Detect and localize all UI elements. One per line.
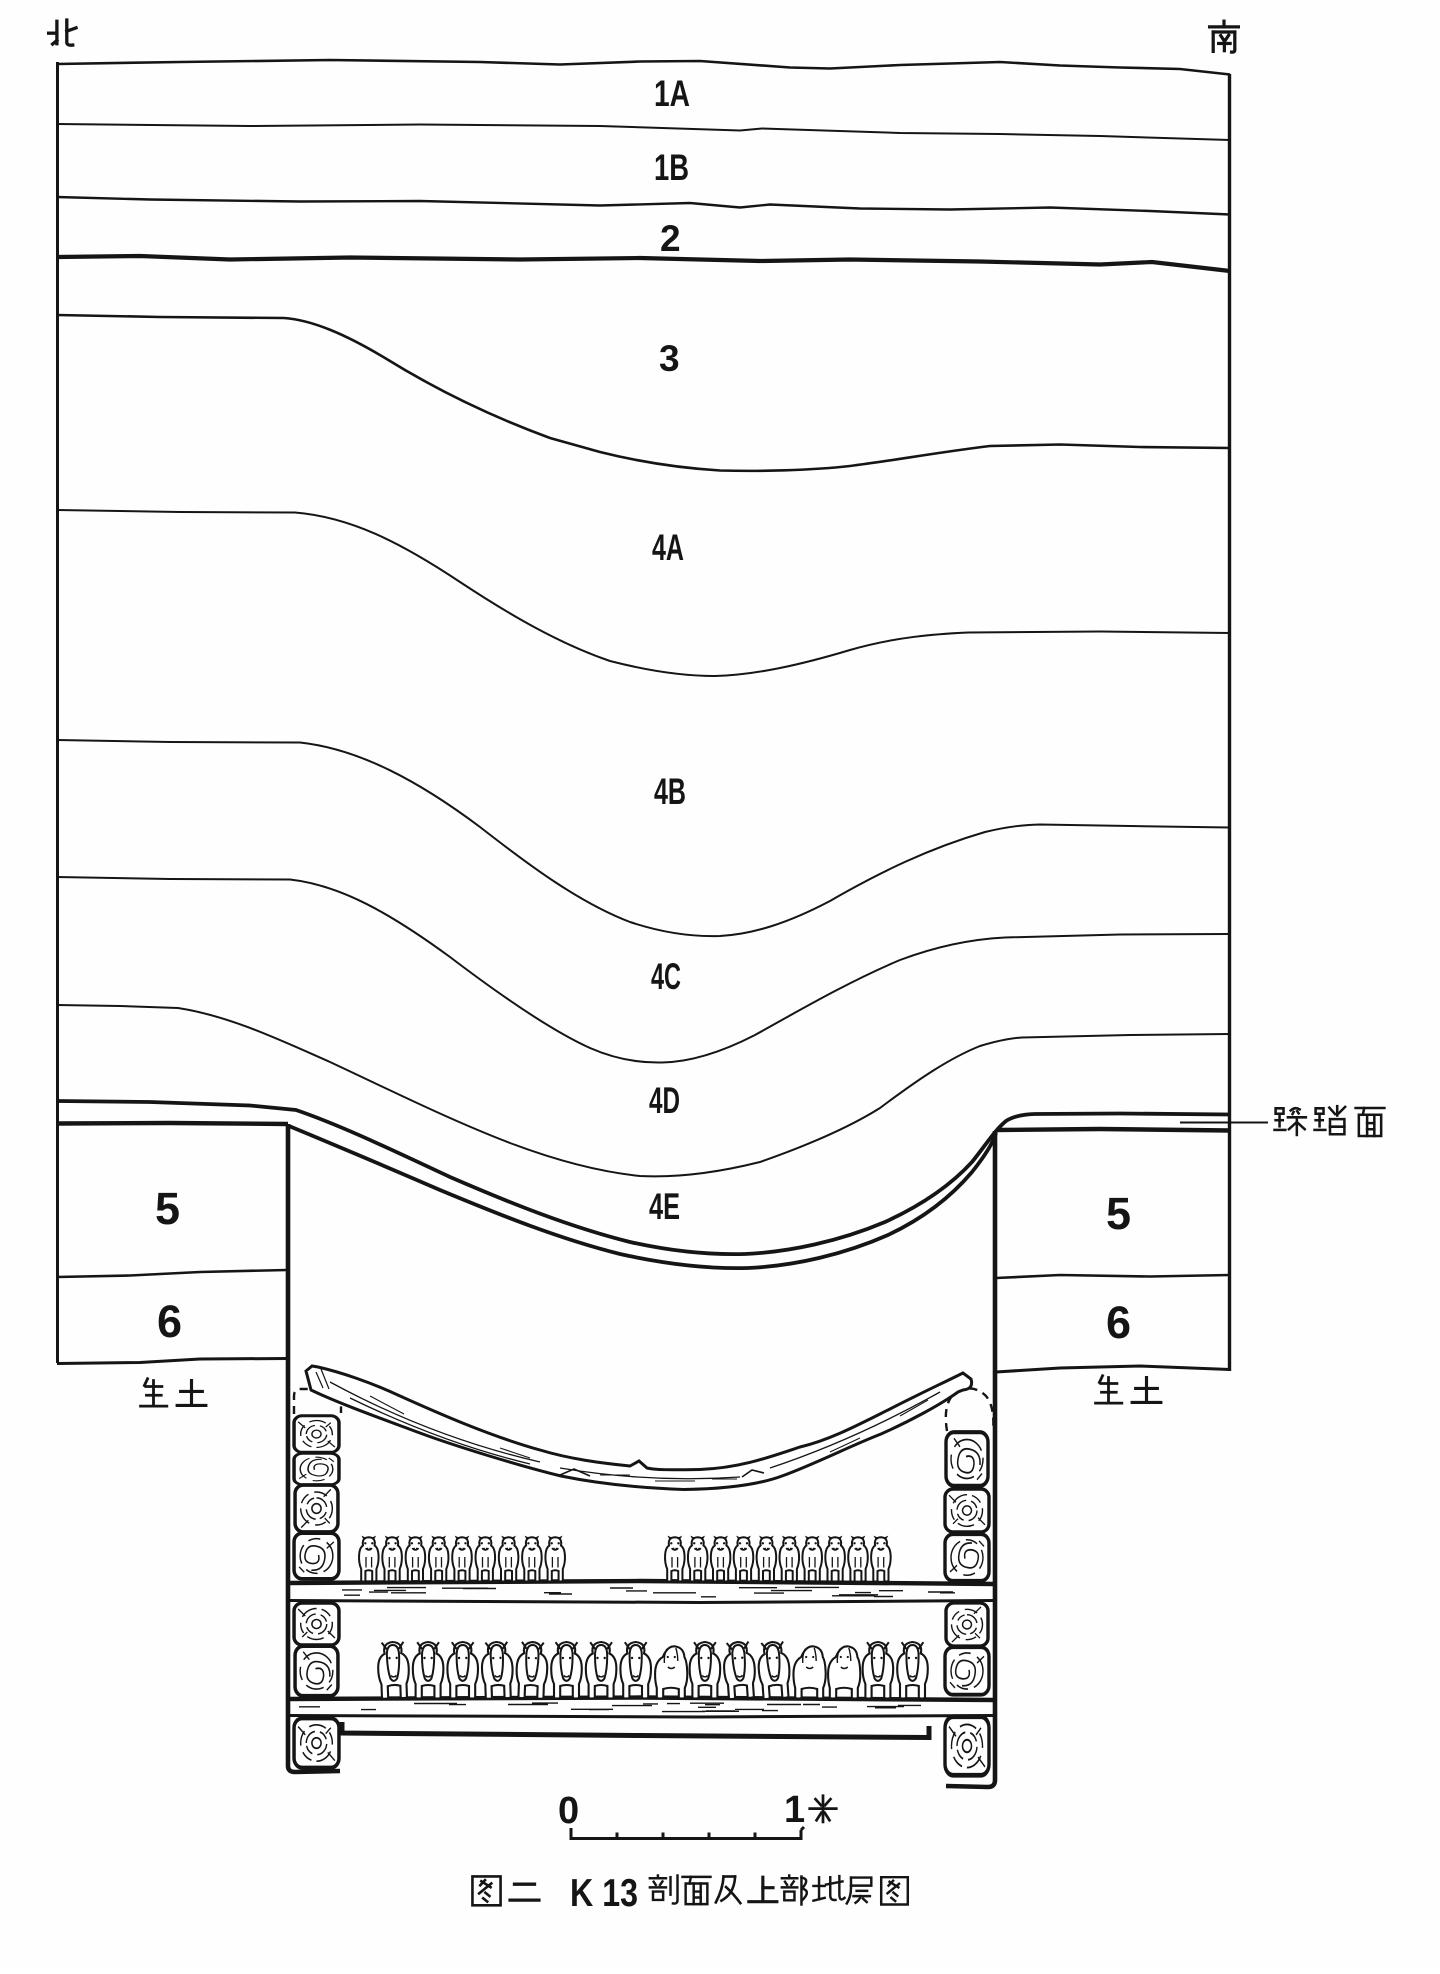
svg-text:4C: 4C [651,956,681,997]
svg-text:3: 3 [659,338,680,379]
svg-text:4E: 4E [649,1186,680,1227]
svg-text:4D: 4D [649,1080,680,1121]
svg-text:5: 5 [155,1183,180,1234]
svg-text:6: 6 [1106,1297,1131,1348]
svg-text:6: 6 [157,1296,182,1347]
svg-text:K 13: K 13 [570,1872,638,1915]
svg-text:1: 1 [784,1789,805,1831]
svg-text:5: 5 [1106,1188,1131,1239]
svg-text:2: 2 [660,218,681,259]
svg-text:1B: 1B [654,147,689,188]
svg-text:4B: 4B [654,771,686,812]
svg-text:1A: 1A [654,73,690,114]
svg-text:4A: 4A [652,527,684,568]
svg-text:0: 0 [558,1790,579,1832]
